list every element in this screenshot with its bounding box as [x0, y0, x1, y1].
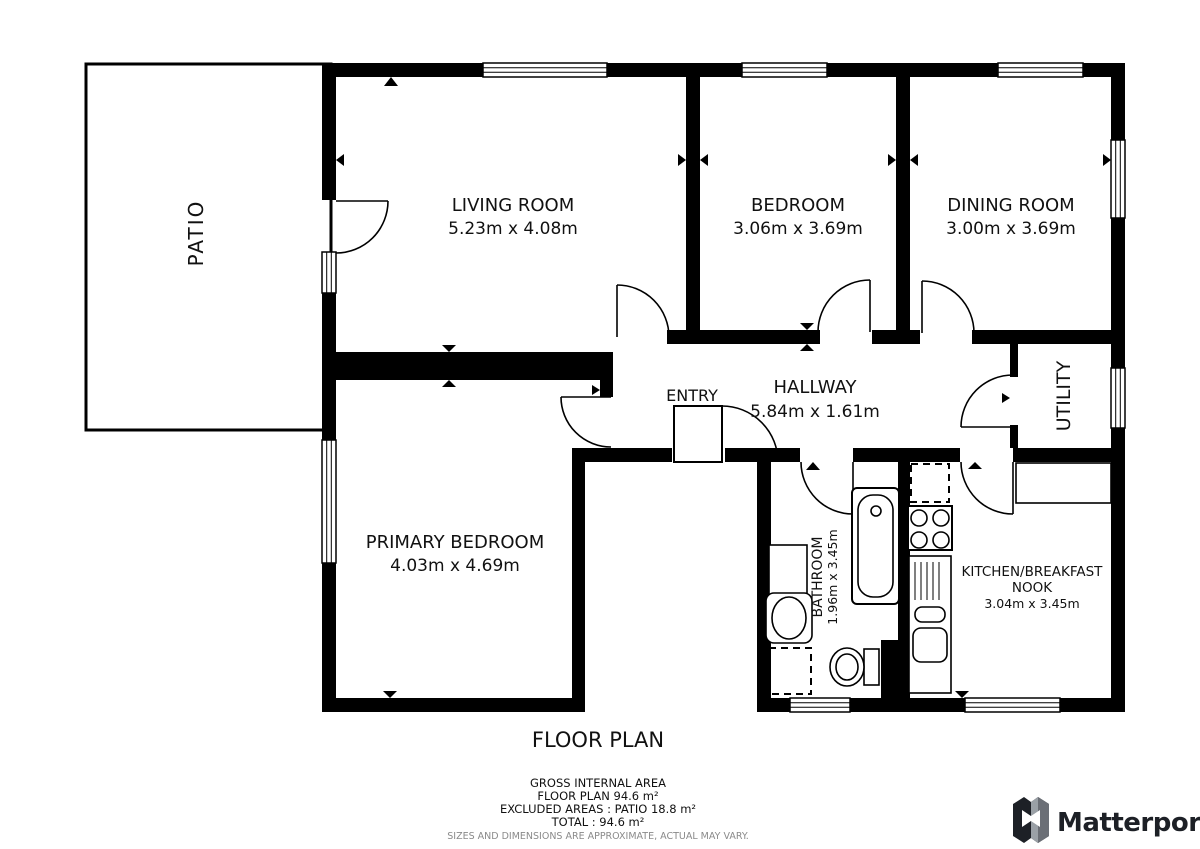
- kitchen-label-line1: KITCHEN/BREAKFAST: [962, 564, 1104, 580]
- gia-heading: GROSS INTERNAL AREA: [530, 776, 666, 790]
- bathroom-dims: 1.96m x 3.45m: [825, 529, 840, 624]
- gia-floor-plan: FLOOR PLAN 94.6 m²: [537, 789, 658, 803]
- window-icon-living-top: [483, 63, 607, 77]
- bedroom-dims: 3.06m x 3.69m: [733, 219, 863, 239]
- door-icon-hall-bedroom: [818, 280, 870, 332]
- window-icon-bedroom-top: [742, 63, 827, 77]
- bathroom-label: BATHROOM: [810, 536, 826, 617]
- kitchen-label-line2: NOOK: [1012, 580, 1053, 596]
- shower-tray-icon: [769, 648, 811, 694]
- door-icon-hall-primary: [561, 397, 611, 447]
- living-room-label: LIVING ROOM: [452, 195, 574, 216]
- living-room-dims: 5.23m x 4.08m: [448, 219, 578, 239]
- window-icon-kitchen-bottom: [965, 698, 1060, 712]
- door-icon-hall-kitchen: [961, 462, 1013, 514]
- dining-room-label: DINING ROOM: [947, 195, 1074, 216]
- gia-total: TOTAL : 94.6 m²: [551, 815, 645, 829]
- disclaimer-text: SIZES AND DIMENSIONS ARE APPROXIMATE, AC…: [447, 831, 748, 842]
- toilet-icon: [830, 648, 879, 686]
- window-icon-dining-right: [1111, 140, 1125, 218]
- primary-bedroom-dims: 4.03m x 4.69m: [390, 556, 520, 576]
- kitchen-counter-icon: [1016, 463, 1111, 503]
- entry-label: ENTRY: [666, 386, 718, 405]
- door-icon-patio-living: [336, 201, 388, 253]
- bedroom-label: BEDROOM: [751, 195, 845, 216]
- primary-bedroom-label: PRIMARY BEDROOM: [366, 532, 545, 553]
- patio-label: PATIO: [184, 200, 208, 267]
- patio-outline: [86, 64, 331, 430]
- window-icon-living-left: [322, 252, 336, 293]
- bathtub-icon: [852, 488, 899, 604]
- walls-layer: [322, 63, 1125, 712]
- gia-excluded: EXCLUDED AREAS : PATIO 18.8 m²: [500, 802, 696, 816]
- matterport-logo: Matterport: [1013, 797, 1200, 843]
- window-icon-primary-left: [322, 440, 336, 563]
- door-icon-hall-dining: [922, 281, 974, 333]
- hallway-dims: 5.84m x 1.61m: [750, 402, 880, 422]
- matterport-logo-text: Matterport: [1057, 808, 1200, 838]
- stove-icon: [908, 506, 952, 550]
- kitchen-dims: 3.04m x 3.45m: [984, 596, 1079, 611]
- door-icon-hall-utility: [961, 375, 1013, 427]
- page-title: FLOOR PLAN: [532, 728, 664, 752]
- floor-plan-drawing: PATIO LIVING ROOM 5.23m x 4.08m BEDROOM …: [0, 0, 1200, 849]
- footer-block: FLOOR PLAN GROSS INTERNAL AREA FLOOR PLA…: [447, 728, 748, 842]
- window-icon-utility-right: [1111, 368, 1125, 428]
- dining-room-dims: 3.00m x 3.69m: [946, 219, 1076, 239]
- door-icon-hall-living: [617, 285, 669, 337]
- kitchen-sink-unit-icon: [909, 556, 951, 693]
- window-icon-bathroom-bottom: [790, 698, 850, 712]
- bathroom-vanity-icon: [766, 545, 812, 643]
- floor-plan-page: PATIO LIVING ROOM 5.23m x 4.08m BEDROOM …: [0, 0, 1200, 849]
- hallway-label: HALLWAY: [774, 377, 858, 398]
- appliance-space-icon: [911, 464, 949, 502]
- window-icons: [322, 63, 1125, 712]
- window-icon-dining-top: [998, 63, 1083, 77]
- matterport-logo-icon: [1013, 797, 1049, 843]
- utility-label: UTILITY: [1053, 360, 1075, 431]
